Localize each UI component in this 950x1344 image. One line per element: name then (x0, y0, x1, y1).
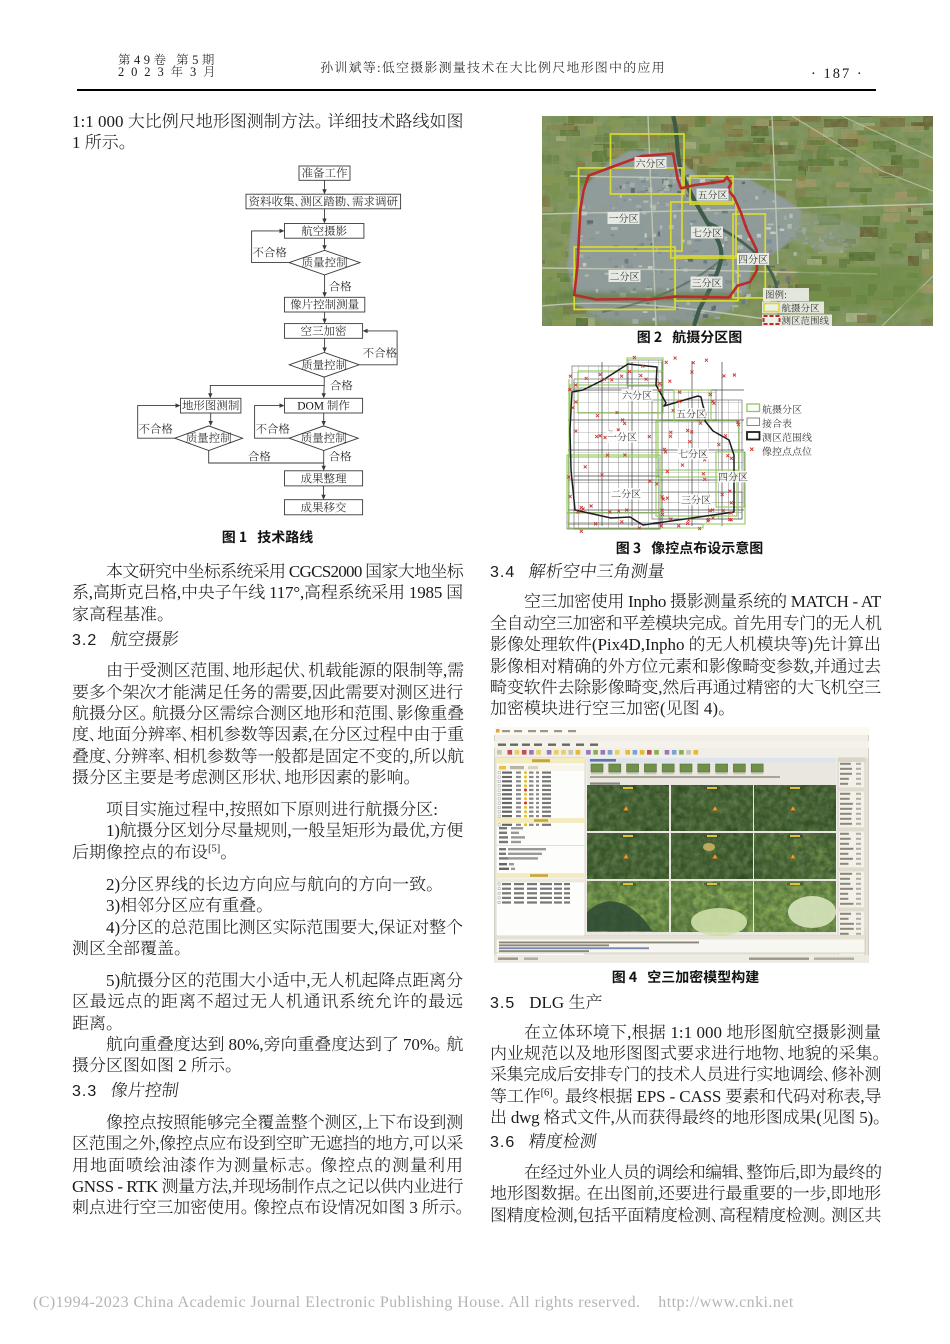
svg-text:合格: 合格 (248, 451, 271, 464)
svg-text:不合格: 不合格 (363, 347, 398, 360)
svg-text:测区范围线: 测区范围线 (762, 429, 812, 444)
svg-text:合格: 合格 (329, 280, 352, 293)
svg-text:空三加密: 空三加密 (301, 325, 347, 338)
svg-text:质量控制: 质量控制 (302, 257, 348, 270)
svg-text:二分区: 二分区 (611, 486, 641, 501)
svg-text:六分区: 六分区 (622, 387, 652, 402)
svg-text:像片控制测量: 像片控制测量 (290, 299, 359, 312)
svg-text:不合格: 不合格 (252, 246, 287, 259)
svg-text:五分区: 五分区 (676, 406, 706, 421)
svg-text:像控点点位: 像控点点位 (762, 443, 812, 458)
svg-text:合格: 合格 (330, 380, 353, 393)
svg-text:四分区: 四分区 (718, 469, 748, 484)
svg-text:航摄分区: 航摄分区 (762, 401, 802, 416)
svg-text:合格: 合格 (329, 451, 352, 464)
svg-text:成果移交: 成果移交 (301, 501, 347, 514)
svg-text:地形图测制: 地形图测制 (182, 400, 240, 413)
svg-text:成果整理: 成果整理 (301, 472, 347, 485)
svg-text:接合表: 接合表 (762, 415, 792, 430)
svg-text:DOM 制作: DOM 制作 (297, 400, 350, 413)
svg-text:质量控制: 质量控制 (186, 432, 232, 445)
svg-text:质量控制: 质量控制 (301, 432, 347, 445)
svg-text:资料收集､测区踏勘､需求调研: 资料收集､测区踏勘､需求调研 (249, 196, 399, 209)
svg-text:准备工作: 准备工作 (302, 167, 348, 180)
svg-text:质量控制: 质量控制 (301, 359, 347, 372)
svg-text:一分区: 一分区 (607, 429, 637, 444)
svg-text:七分区: 七分区 (678, 446, 708, 461)
svg-text:三分区: 三分区 (681, 492, 711, 507)
svg-text:不合格: 不合格 (255, 423, 290, 436)
svg-text:不合格: 不合格 (138, 423, 173, 436)
svg-text:航空摄影: 航空摄影 (301, 225, 347, 238)
